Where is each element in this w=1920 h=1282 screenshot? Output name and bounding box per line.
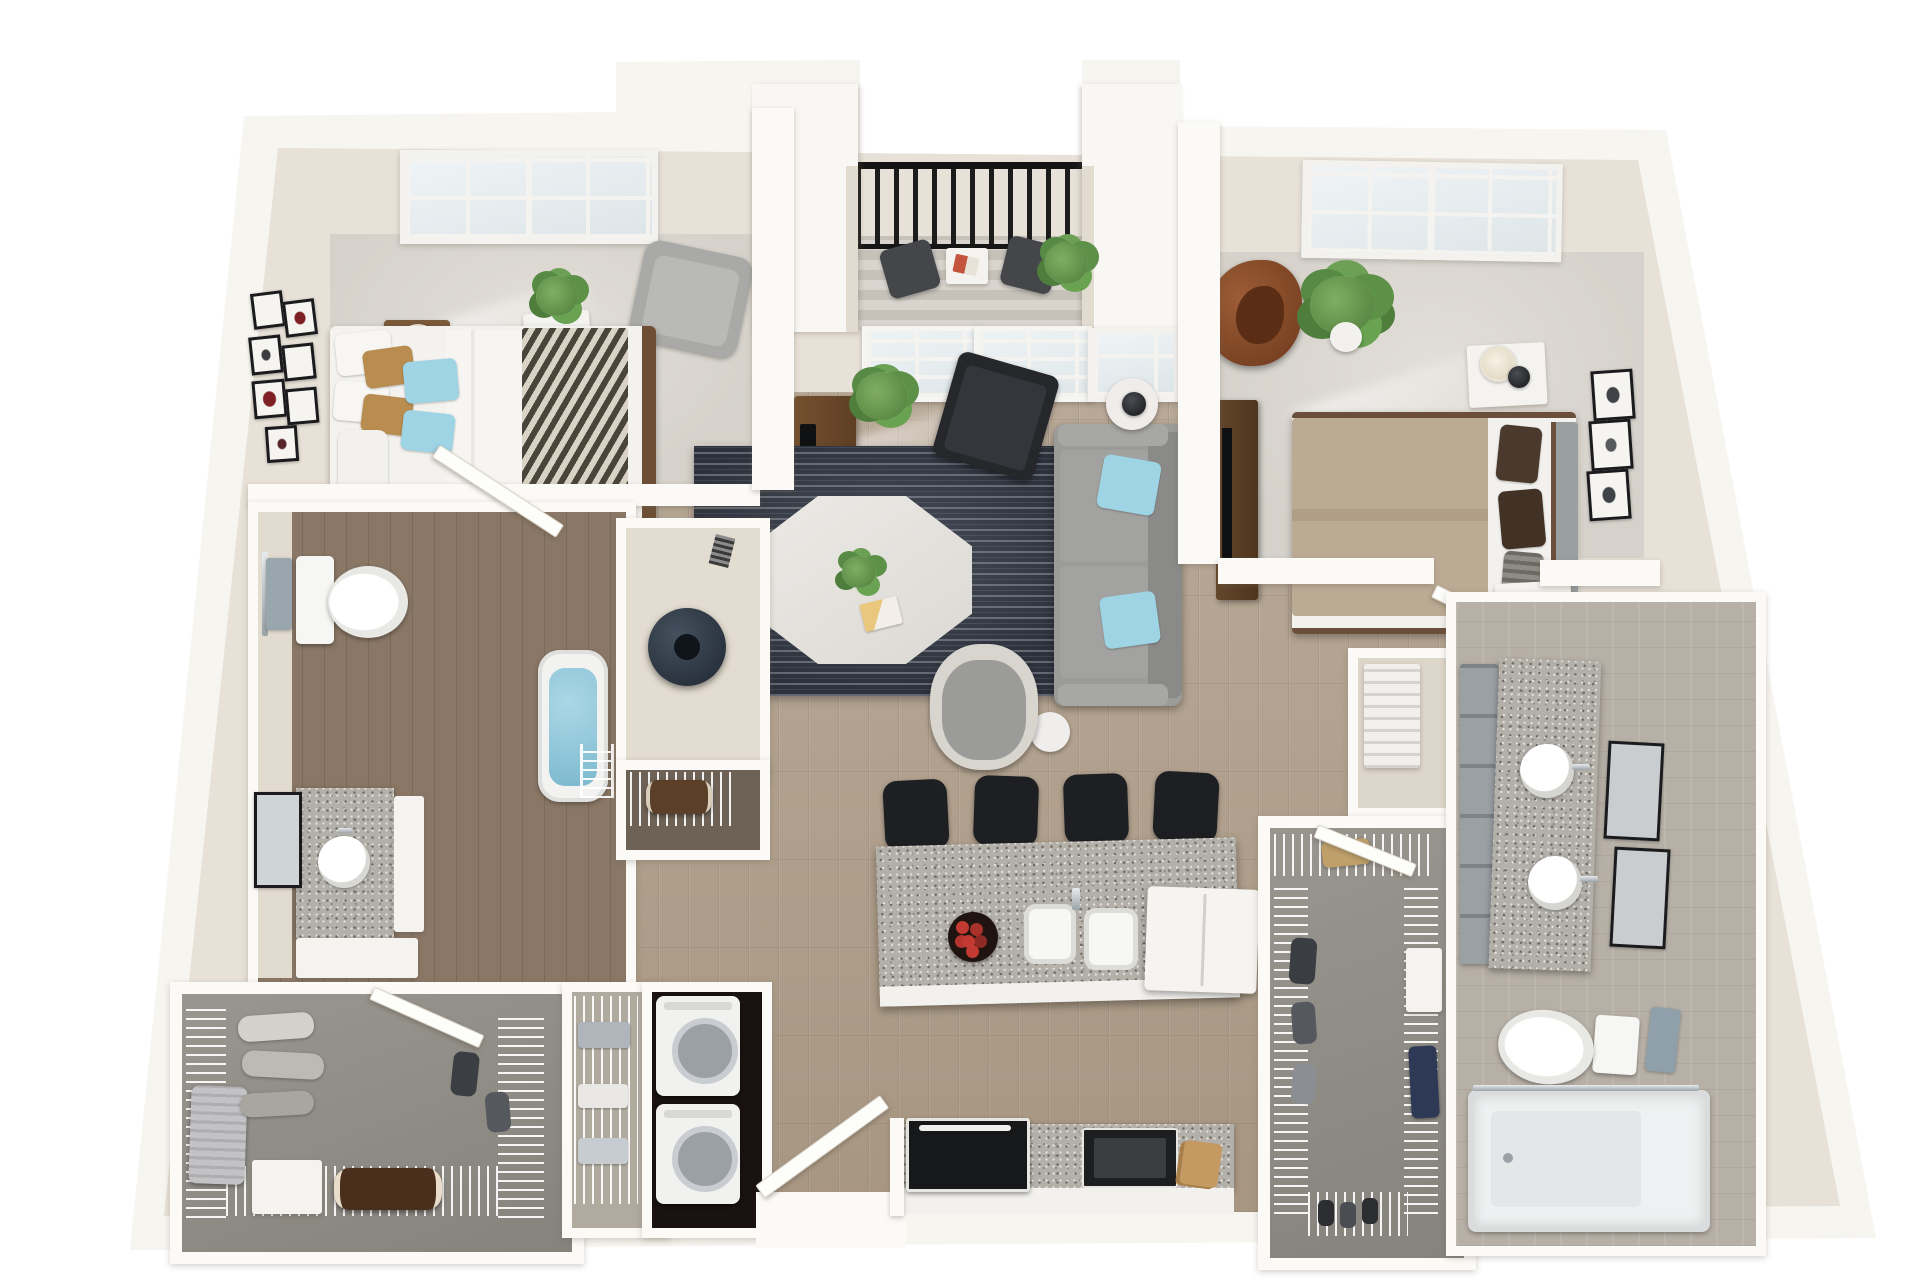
tank-cap bbox=[674, 634, 700, 660]
pillow-blue bbox=[400, 409, 456, 454]
towels bbox=[578, 1022, 630, 1048]
sink-faucet bbox=[1572, 764, 1590, 770]
hanging-clothes bbox=[484, 1091, 511, 1133]
hvac-unit bbox=[1364, 664, 1420, 768]
hanging-clothes bbox=[1291, 1001, 1318, 1045]
wall bbox=[752, 108, 794, 490]
range bbox=[906, 1118, 1030, 1192]
floorplan-canvas bbox=[0, 0, 1920, 1282]
island-sink bbox=[1024, 904, 1076, 964]
water-heater-tank bbox=[648, 608, 726, 686]
closet-duffel-bag bbox=[334, 1168, 442, 1210]
wire-shelf bbox=[1274, 884, 1308, 1214]
vanity-sink bbox=[318, 836, 370, 888]
apple-bowl bbox=[948, 912, 998, 962]
vanity-drawers bbox=[394, 796, 424, 932]
egg-chair-seat bbox=[1236, 286, 1284, 344]
gallery-frame bbox=[251, 379, 287, 420]
black-lamp bbox=[1122, 392, 1146, 416]
toilet-tank bbox=[1592, 1015, 1640, 1076]
jeans bbox=[1408, 1045, 1440, 1118]
sink-faucet bbox=[1580, 876, 1598, 882]
sofa-arm bbox=[1058, 684, 1168, 706]
wire-rack bbox=[580, 744, 614, 798]
pillow-blue bbox=[1096, 453, 1162, 516]
vanity-mirror bbox=[1603, 741, 1664, 842]
sink-faucet bbox=[338, 828, 352, 833]
gallery-frame bbox=[284, 387, 319, 426]
stacked-dryer bbox=[656, 1104, 740, 1204]
balcony-railing bbox=[856, 162, 1084, 249]
apples bbox=[956, 921, 969, 934]
duvet-taupe bbox=[1292, 418, 1488, 616]
wall-art bbox=[1590, 369, 1635, 422]
pillar-face bbox=[846, 166, 858, 332]
island-faucet bbox=[1072, 888, 1080, 910]
shower-drain bbox=[1503, 1153, 1513, 1163]
coffee-table-plant bbox=[842, 556, 876, 588]
gallery-frame bbox=[281, 342, 317, 381]
balcony-plant bbox=[1044, 242, 1088, 284]
gallery-frame bbox=[265, 425, 299, 463]
hanging-clothes bbox=[237, 1011, 315, 1042]
dryer-door bbox=[672, 1126, 738, 1192]
dresser-tv bbox=[1222, 428, 1232, 572]
bar-stool bbox=[973, 775, 1039, 847]
hanging-clothes bbox=[1290, 1063, 1317, 1105]
vessel-sink bbox=[1528, 856, 1582, 910]
cutting-boards bbox=[1179, 1140, 1223, 1189]
walk-in-shower bbox=[1468, 1090, 1710, 1232]
shower-glass-rail bbox=[1473, 1085, 1699, 1091]
wall-art bbox=[1586, 469, 1631, 522]
refrigerator bbox=[1144, 886, 1260, 994]
stacked-washer bbox=[656, 996, 740, 1096]
wall-art bbox=[1588, 419, 1633, 472]
sofa bbox=[1054, 424, 1182, 706]
vanity-mirror bbox=[254, 792, 302, 888]
wall bbox=[1218, 558, 1434, 584]
balcony-pillar bbox=[1082, 84, 1182, 332]
barrel-chair bbox=[930, 644, 1038, 770]
gray-towel bbox=[266, 558, 292, 630]
wall bbox=[890, 1118, 904, 1216]
wall bbox=[1178, 122, 1220, 564]
dryer-controls bbox=[664, 1110, 732, 1118]
washer-controls bbox=[664, 1002, 732, 1010]
suitcase bbox=[188, 1085, 247, 1185]
pillar-face bbox=[1082, 166, 1094, 332]
bar-stool bbox=[1152, 770, 1220, 843]
bedroom2-window bbox=[1301, 160, 1563, 263]
shoes bbox=[1318, 1200, 1334, 1226]
hanging-clothes bbox=[239, 1090, 314, 1118]
vessel-sink bbox=[1520, 744, 1574, 798]
island-sink bbox=[1084, 908, 1138, 970]
towels bbox=[578, 1084, 628, 1108]
pillow-blue bbox=[1099, 590, 1162, 649]
fridge-door-split bbox=[1200, 894, 1206, 986]
sphere-lamp bbox=[1508, 366, 1530, 388]
pillow-blue bbox=[402, 358, 459, 405]
bath-cabinet bbox=[296, 938, 418, 978]
plant-pot bbox=[1330, 322, 1362, 352]
microwave-appliance bbox=[1082, 1128, 1178, 1188]
appliance-glass bbox=[1094, 1138, 1166, 1178]
barrel-chair-seat bbox=[942, 660, 1026, 760]
duffel-bag bbox=[646, 780, 712, 814]
bedroom1-plant bbox=[536, 276, 578, 316]
hanging-clothes bbox=[1288, 937, 1317, 985]
drawer-unit bbox=[1406, 948, 1442, 1012]
storage-bench bbox=[252, 1160, 322, 1214]
hanging-clothes bbox=[241, 1050, 324, 1080]
bathroom2-vanity bbox=[1489, 658, 1602, 971]
towels bbox=[578, 1138, 628, 1164]
vanity-mirror bbox=[1609, 847, 1670, 950]
entry-opening bbox=[756, 1192, 906, 1248]
range-handle bbox=[919, 1125, 1011, 1131]
pillow-brown bbox=[1495, 424, 1543, 484]
toilet-bowl bbox=[328, 566, 408, 638]
bar-stool bbox=[882, 778, 950, 851]
bar-stool bbox=[1063, 773, 1129, 845]
washer-door bbox=[672, 1018, 738, 1084]
pillow-brown bbox=[1498, 488, 1547, 550]
gallery-frame bbox=[248, 334, 284, 375]
living-palm-plant bbox=[856, 372, 908, 420]
sofa-arm bbox=[1058, 424, 1168, 446]
bedroom1-window bbox=[400, 150, 658, 244]
gallery-frame bbox=[250, 290, 286, 330]
shower-pan bbox=[1491, 1111, 1641, 1207]
hanging-clothes bbox=[450, 1051, 480, 1097]
gallery-frame bbox=[282, 298, 318, 338]
wall bbox=[1540, 560, 1660, 586]
